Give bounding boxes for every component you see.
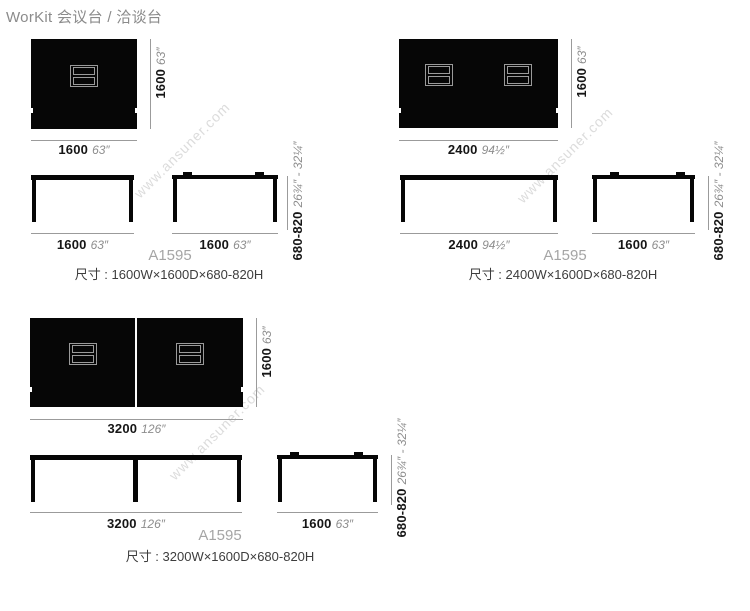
model-number: A1595 [160,527,280,544]
cable-tray-flap [72,355,94,363]
front-width-mm: 2400 [448,237,478,252]
cable-tray-flap [179,345,201,353]
cable-tray-icon [504,64,532,86]
edge-notch [241,387,243,392]
width-inch: 94½″ [482,143,510,157]
top-view [399,39,558,128]
top-view [31,39,137,129]
dimension-line [391,455,392,505]
dimension-line [277,512,378,513]
page-title: WorKit 会议台 / 洽谈台 [6,6,162,27]
model-number: A1595 [110,247,230,264]
height-mm: 680-820 [290,211,305,260]
dimension-line [592,233,695,234]
dimension-line [287,176,288,230]
table-leg [237,455,241,502]
tabletop-bar [277,455,378,459]
cable-tray-flap [428,66,450,74]
table-leg [373,455,377,502]
height-inch: 26¾″ - 32¼″ [395,419,409,485]
dimension-line [30,419,243,420]
side-view [277,452,378,502]
side-depth-mm: 1600 [302,516,332,531]
dimension-line [172,233,278,234]
depth-dimension-label: 160063″ [574,7,590,137]
cable-tray-icon [70,65,98,87]
table-leg [129,175,133,222]
height-inch: 26¾″ - 32¼″ [291,142,305,208]
height-inch: 26¾″ - 32¼″ [712,142,726,208]
side-depth-inch: 63″ [652,238,670,252]
cable-tray-flap [507,76,529,84]
dimension-line [31,140,137,141]
size-caption: 尺寸 : 1600W×1600D×680-820H [39,264,299,283]
table-leg [593,175,597,222]
side-view [172,172,278,222]
model-number: A1595 [505,247,625,264]
front-width-inch: 63″ [91,238,109,252]
tabletop-bar [31,175,134,180]
table-leg [273,175,277,222]
edge-notch [135,108,137,113]
tabletop-bar [592,175,695,179]
front-view [400,175,558,222]
depth-mm: 1600 [259,348,274,378]
front-width-mm: 1600 [57,237,87,252]
depth-inch: 63″ [154,47,168,65]
dimension-line [400,233,558,234]
dimension-line [30,512,242,513]
edge-notch [30,387,32,392]
cable-tray-flap [507,66,529,74]
top-view [30,318,243,407]
size-caption: 尺寸 : 3200W×1600D×680-820H [90,546,350,565]
table-leg [31,455,35,502]
dimension-line [399,140,558,141]
table-leg [32,175,36,222]
height-mm: 680-820 [394,488,409,537]
table-leg [690,175,694,222]
depth-inch: 63″ [260,326,274,344]
table-leg [278,455,282,502]
spec-sheet: WorKit 会议台 / 洽谈台 www.ansuner.com www.ans… [0,0,750,611]
tabletop-bar [400,175,558,180]
depth-mm: 1600 [574,68,589,98]
cable-tray-icon [69,343,97,365]
edge-notch [31,108,33,113]
cable-tray-flap [73,77,95,85]
width-mm: 1600 [58,142,88,157]
dimension-line [256,318,257,407]
cable-tray-flap [72,345,94,353]
side-depth-inch: 63″ [233,238,251,252]
table-leg [401,175,405,222]
table-leg [553,175,557,222]
depth-dimension-label: 160063″ [259,287,275,417]
height-mm: 680-820 [711,211,726,260]
height-dimension-label: 680-82026¾″ - 32¼″ [290,136,306,266]
table-leg [133,455,138,502]
width-dimension-label: 3200126″ [30,421,243,436]
width-inch: 126″ [141,422,165,436]
side-view [592,172,695,222]
dimension-line [571,39,572,128]
tabletop-bar [172,175,278,179]
cable-tray-icon [425,64,453,86]
width-dimension-label: 160063″ [31,142,137,157]
cable-tray-flap [179,355,201,363]
edge-notch [399,108,401,113]
edge-notch [556,108,558,113]
front-view [30,455,242,502]
front-width-mm: 3200 [107,516,137,531]
side-depth-dimension-label: 160063″ [277,516,378,531]
dimension-line [150,39,151,129]
width-mm: 2400 [448,142,478,157]
depth-mm: 1600 [153,69,168,99]
depth-inch: 63″ [575,46,589,64]
height-dimension-label: 680-82026¾″ - 32¼″ [711,136,727,266]
front-view [31,175,134,222]
cable-tray-icon [176,343,204,365]
dimension-line [31,233,134,234]
width-dimension-label: 240094½″ [399,142,558,157]
cable-tray-flap [73,67,95,75]
size-caption: 尺寸 : 2400W×1600D×680-820H [433,264,693,283]
cable-tray-flap [428,76,450,84]
height-dimension-label: 680-82026¾″ - 32¼″ [394,413,410,543]
side-depth-inch: 63″ [336,517,354,531]
tabletop-seam [135,318,137,407]
table-leg [173,175,177,222]
width-mm: 3200 [107,421,137,436]
depth-dimension-label: 160063″ [153,8,169,138]
width-inch: 63″ [92,143,110,157]
dimension-line [708,176,709,230]
